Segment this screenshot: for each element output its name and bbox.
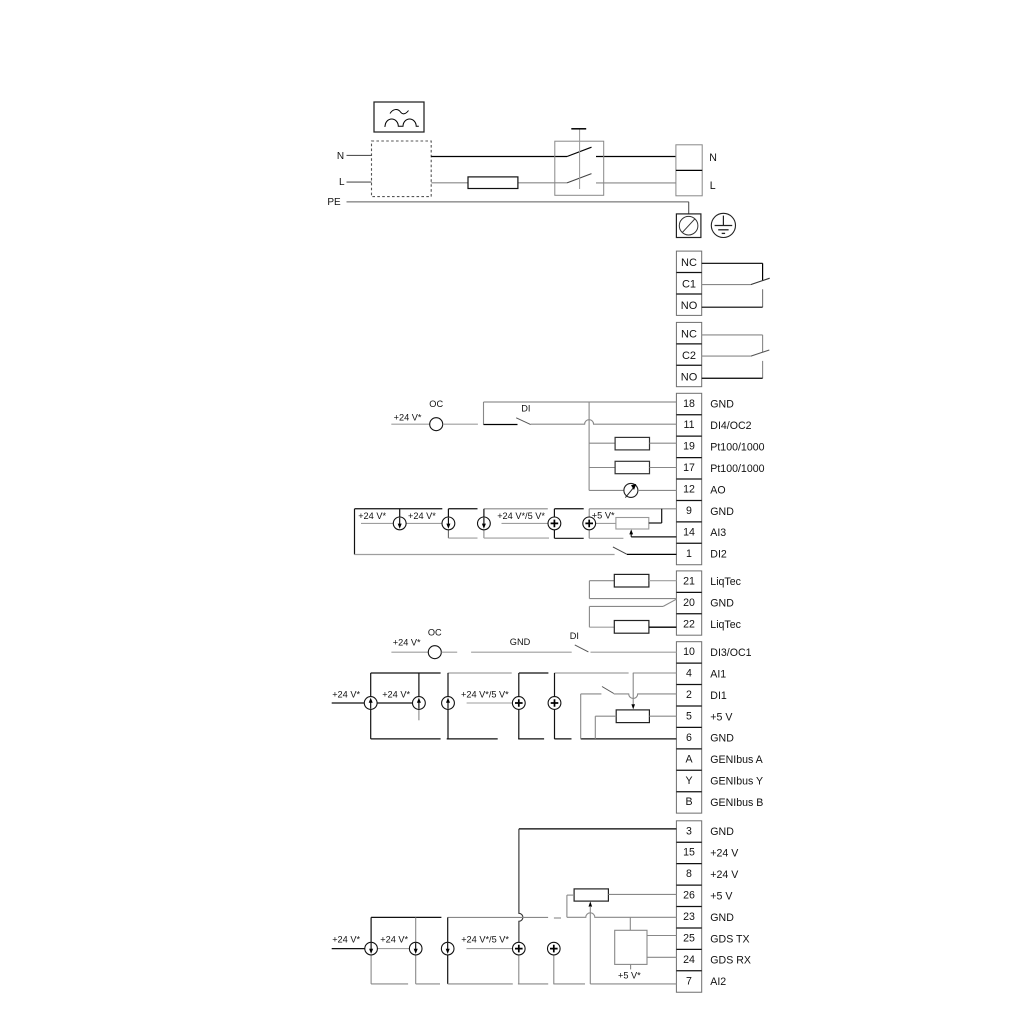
svg-text:GND: GND bbox=[710, 506, 734, 518]
svg-text:GND: GND bbox=[510, 637, 531, 647]
svg-text:AI1: AI1 bbox=[710, 668, 726, 680]
svg-text:21: 21 bbox=[683, 575, 695, 587]
svg-text:25: 25 bbox=[683, 932, 695, 944]
svg-text:N: N bbox=[337, 151, 344, 162]
svg-text:+24 V*: +24 V* bbox=[382, 689, 410, 699]
svg-text:+5 V*: +5 V* bbox=[618, 970, 641, 980]
svg-text:+5 V*: +5 V* bbox=[592, 511, 615, 521]
svg-text:12: 12 bbox=[683, 484, 695, 496]
svg-text:7: 7 bbox=[686, 975, 692, 987]
svg-text:L: L bbox=[339, 177, 345, 188]
svg-text:DI3/OC1: DI3/OC1 bbox=[710, 647, 751, 659]
svg-text:+5 V: +5 V bbox=[710, 711, 733, 723]
svg-text:Pt100/1000: Pt100/1000 bbox=[710, 441, 764, 453]
svg-text:LiqTec: LiqTec bbox=[710, 619, 741, 631]
svg-text:GND: GND bbox=[710, 598, 734, 610]
svg-text:C1: C1 bbox=[682, 279, 696, 291]
svg-text:DI: DI bbox=[521, 404, 530, 414]
svg-text:2: 2 bbox=[686, 689, 692, 701]
svg-text:GND: GND bbox=[710, 733, 734, 745]
svg-text:+24 V*: +24 V* bbox=[393, 637, 421, 647]
svg-text:20: 20 bbox=[683, 597, 695, 609]
svg-text:3: 3 bbox=[686, 825, 692, 837]
svg-text:DI2: DI2 bbox=[710, 549, 727, 561]
svg-text:GDS TX: GDS TX bbox=[710, 933, 749, 945]
svg-text:GENIbus A: GENIbus A bbox=[710, 754, 763, 766]
svg-text:NO: NO bbox=[681, 300, 698, 312]
svg-text:+24 V*/5 V*: +24 V*/5 V* bbox=[461, 689, 509, 699]
svg-text:5: 5 bbox=[686, 710, 692, 722]
svg-text:15: 15 bbox=[683, 847, 695, 859]
svg-text:AO: AO bbox=[710, 484, 725, 496]
svg-text:1: 1 bbox=[686, 548, 692, 560]
svg-text:Y: Y bbox=[685, 775, 692, 787]
svg-text:+24 V*: +24 V* bbox=[408, 511, 436, 521]
svg-text:NC: NC bbox=[681, 257, 697, 269]
svg-text:8: 8 bbox=[686, 868, 692, 880]
svg-text:PE: PE bbox=[327, 197, 341, 208]
svg-text:19: 19 bbox=[683, 441, 695, 453]
svg-text:DI: DI bbox=[570, 631, 579, 641]
svg-text:26: 26 bbox=[683, 890, 695, 902]
svg-text:AI2: AI2 bbox=[710, 976, 726, 988]
svg-text:+24 V*: +24 V* bbox=[332, 689, 360, 699]
svg-text:4: 4 bbox=[686, 668, 692, 680]
svg-text:Pt100/1000: Pt100/1000 bbox=[710, 463, 764, 475]
svg-text:GND: GND bbox=[710, 826, 734, 838]
svg-text:A: A bbox=[685, 753, 693, 765]
svg-text:DI1: DI1 bbox=[710, 690, 727, 702]
svg-text:GND: GND bbox=[710, 399, 734, 411]
svg-text:AI3: AI3 bbox=[710, 527, 726, 539]
svg-text:+24 V*: +24 V* bbox=[358, 511, 386, 521]
svg-text:+24 V*: +24 V* bbox=[394, 413, 422, 423]
svg-text:14: 14 bbox=[683, 526, 695, 538]
svg-text:+24 V*: +24 V* bbox=[380, 935, 408, 945]
svg-text:C2: C2 bbox=[682, 350, 696, 362]
svg-text:GENIbus B: GENIbus B bbox=[710, 797, 763, 809]
svg-text:GND: GND bbox=[710, 912, 734, 924]
svg-text:+24 V: +24 V bbox=[710, 848, 739, 860]
svg-text:17: 17 bbox=[683, 462, 695, 474]
svg-text:NO: NO bbox=[681, 371, 698, 383]
svg-text:GENIbus Y: GENIbus Y bbox=[710, 776, 763, 788]
svg-text:LiqTec: LiqTec bbox=[710, 576, 741, 588]
svg-text:6: 6 bbox=[686, 732, 692, 744]
svg-text:11: 11 bbox=[684, 419, 695, 431]
svg-text:+24 V*/5 V*: +24 V*/5 V* bbox=[497, 511, 545, 521]
svg-text:24: 24 bbox=[683, 954, 695, 966]
svg-text:GDS RX: GDS RX bbox=[710, 955, 751, 967]
svg-text:OC: OC bbox=[428, 627, 442, 637]
svg-text:+24 V: +24 V bbox=[710, 869, 739, 881]
svg-text:+24 V*/5 V*: +24 V*/5 V* bbox=[461, 935, 509, 945]
svg-text:23: 23 bbox=[683, 911, 695, 923]
svg-text:+24 V*: +24 V* bbox=[332, 935, 360, 945]
svg-text:OC: OC bbox=[429, 399, 443, 409]
svg-text:18: 18 bbox=[683, 398, 695, 410]
svg-text:DI4/OC2: DI4/OC2 bbox=[710, 420, 751, 432]
svg-text:+5 V: +5 V bbox=[710, 890, 733, 902]
svg-text:N: N bbox=[709, 152, 717, 164]
svg-text:10: 10 bbox=[683, 646, 695, 658]
svg-text:L: L bbox=[710, 180, 716, 192]
svg-text:9: 9 bbox=[686, 505, 692, 517]
svg-text:NC: NC bbox=[681, 328, 697, 340]
svg-text:B: B bbox=[685, 796, 692, 808]
svg-text:22: 22 bbox=[683, 618, 695, 630]
